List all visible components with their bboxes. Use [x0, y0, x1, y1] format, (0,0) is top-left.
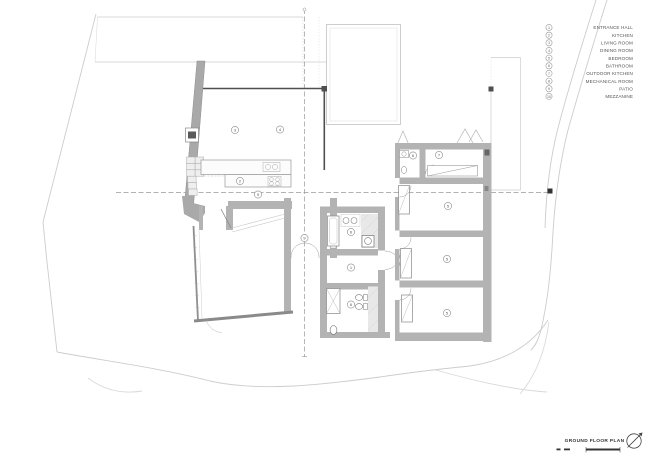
- wall: [395, 333, 483, 342]
- toilet-icon: [401, 167, 407, 174]
- legend: 1 ENTRANCE HALL 2 KITCHEN 3 LIVING ROOM …: [546, 24, 633, 99]
- title-block: GROUND FLOOR PLAN: [557, 433, 643, 453]
- floor-plan-sheet: 3 4 2 9 9 6 1 6 6 7 5 5 5 1 ENTRANCE HAL…: [0, 0, 650, 459]
- room-tag: 5: [443, 255, 450, 262]
- room-tag: 1: [347, 264, 354, 271]
- bidet-icon: [355, 304, 362, 310]
- wall: [378, 207, 385, 251]
- site-line: [57, 320, 548, 387]
- studio-block: [182, 196, 293, 333]
- washer-icon: [362, 236, 374, 248]
- legend-item: 4 DINING ROOM: [546, 47, 633, 53]
- wall: [327, 249, 378, 256]
- stair-step: [187, 157, 196, 163]
- wall: [400, 231, 484, 238]
- room-tag: 4: [276, 126, 283, 133]
- room-tag: 5: [444, 202, 451, 209]
- wall: [378, 270, 385, 338]
- room-tag: 7: [435, 151, 442, 158]
- wall: [194, 312, 293, 321]
- legend-label: MECHANICAL ROOM: [586, 79, 633, 84]
- legend-label: OUTDOOR KITCHEN: [586, 71, 633, 76]
- scale-bar: [557, 447, 621, 453]
- tree-symbol: [397, 131, 409, 145]
- fireplace-icon: [188, 132, 196, 139]
- legend-label: BEDROOM: [608, 56, 633, 61]
- wall: [284, 198, 291, 313]
- legend-item: 7 OUTDOOR KITCHEN: [546, 70, 633, 76]
- legend-label: ENTRANCE HALL: [593, 25, 633, 30]
- legend-number: 2: [548, 34, 550, 38]
- wall: [320, 332, 390, 338]
- room-tag: 6: [409, 152, 416, 159]
- wall: [395, 249, 400, 281]
- mezzanine-outline: [327, 25, 401, 125]
- wall: [199, 228, 202, 318]
- legend-number: 7: [548, 72, 550, 76]
- legend-number: 6: [548, 64, 550, 68]
- stair-step: [187, 170, 196, 176]
- wall: [320, 207, 378, 214]
- legend-label: LIVING ROOM: [601, 41, 633, 46]
- legend-number: 9: [548, 87, 550, 91]
- vent-marker: [485, 186, 489, 191]
- toilet-icon: [364, 295, 368, 301]
- legend-number: 5: [548, 57, 550, 61]
- roof-outlines: [95, 17, 521, 190]
- legend-item: 9 PATIO: [546, 86, 633, 92]
- drawing-title: GROUND FLOOR PLAN: [565, 438, 625, 444]
- wall: [228, 201, 292, 209]
- site-line: [43, 14, 96, 352]
- legend-item: 3 LIVING ROOM: [546, 40, 633, 46]
- bedroom-wing: [395, 129, 492, 342]
- legend-label: MEZZANINE: [605, 94, 633, 99]
- legend-number: 4: [548, 49, 550, 53]
- site-driveway-line: [545, 0, 596, 228]
- contour-line: [436, 370, 547, 392]
- room-tag: 3: [231, 126, 238, 133]
- wall: [420, 150, 426, 178]
- room-tag: 5: [443, 309, 450, 316]
- wall: [320, 207, 327, 339]
- roof-slope-line: [232, 214, 285, 228]
- room-tag: 6: [347, 301, 354, 308]
- bathtub-icon: [328, 216, 340, 246]
- toilet-icon: [330, 326, 337, 335]
- mezzanine-outline-inner: [330, 28, 397, 121]
- room-tag: 2: [236, 177, 243, 184]
- door-arc: [206, 321, 222, 334]
- roof-line: [95, 17, 98, 62]
- wall: [395, 143, 400, 178]
- wall: [400, 178, 484, 185]
- wall: [483, 143, 492, 342]
- scale-bar-segment: [564, 449, 570, 451]
- contour-line: [88, 378, 142, 392]
- room-tag: 9: [301, 234, 308, 241]
- living-block: [184, 61, 327, 212]
- sink-icon: [343, 218, 349, 224]
- stair-step: [187, 163, 196, 169]
- legend-label: KITCHEN: [612, 33, 633, 38]
- stair-step: [188, 183, 197, 189]
- toilet-icon: [355, 295, 362, 301]
- legend-label: DINING ROOM: [600, 48, 633, 53]
- door-arc: [400, 238, 412, 250]
- legend-item: 8 MECHANICAL ROOM: [546, 78, 633, 84]
- wall: [194, 226, 199, 321]
- room-tag: 6: [347, 228, 354, 235]
- roof-slope-line: [232, 218, 285, 232]
- wall: [400, 281, 484, 288]
- legend-label: BATHROOM: [606, 64, 633, 69]
- wall: [199, 206, 203, 230]
- section-marker: [548, 189, 553, 194]
- entrance-block: [320, 207, 400, 339]
- legend-number: 1: [548, 26, 550, 30]
- scale-bar-segment: [557, 449, 561, 451]
- column-marker: [489, 87, 494, 92]
- sink-icon: [351, 218, 357, 224]
- stair-step: [189, 189, 198, 195]
- north-arrow-line: [628, 435, 641, 448]
- floor-plan-drawing: 3 4 2 9 9 6 1 6 6 7 5 5 5 1 ENTRANCE HAL…: [0, 0, 650, 459]
- kitchen-island: [201, 160, 291, 187]
- stair-step: [188, 176, 197, 182]
- room-tag: 9: [254, 191, 261, 198]
- vent-marker: [485, 150, 490, 156]
- legend-item: 10 MEZZANINE: [546, 93, 633, 99]
- north-arrow-icon: [627, 433, 643, 449]
- door-arc: [305, 243, 320, 258]
- legend-item: 6 BATHROOM: [546, 63, 633, 69]
- legend-item: 1 ENTRANCE HALL: [546, 24, 633, 30]
- section-marker: [303, 8, 306, 11]
- site-driveway-line: [531, 0, 607, 350]
- door-arc: [291, 243, 305, 258]
- legend-item: 2 KITCHEN: [546, 32, 633, 38]
- contour-line: [520, 322, 549, 394]
- legend-number: 8: [548, 80, 550, 84]
- legend-label: PATIO: [619, 86, 633, 91]
- wall: [226, 206, 233, 230]
- bidet-icon: [364, 304, 368, 310]
- legend-number: 3: [548, 41, 550, 45]
- wall: [395, 300, 400, 333]
- tree-symbol: [457, 129, 473, 143]
- legend-number: 10: [547, 95, 551, 99]
